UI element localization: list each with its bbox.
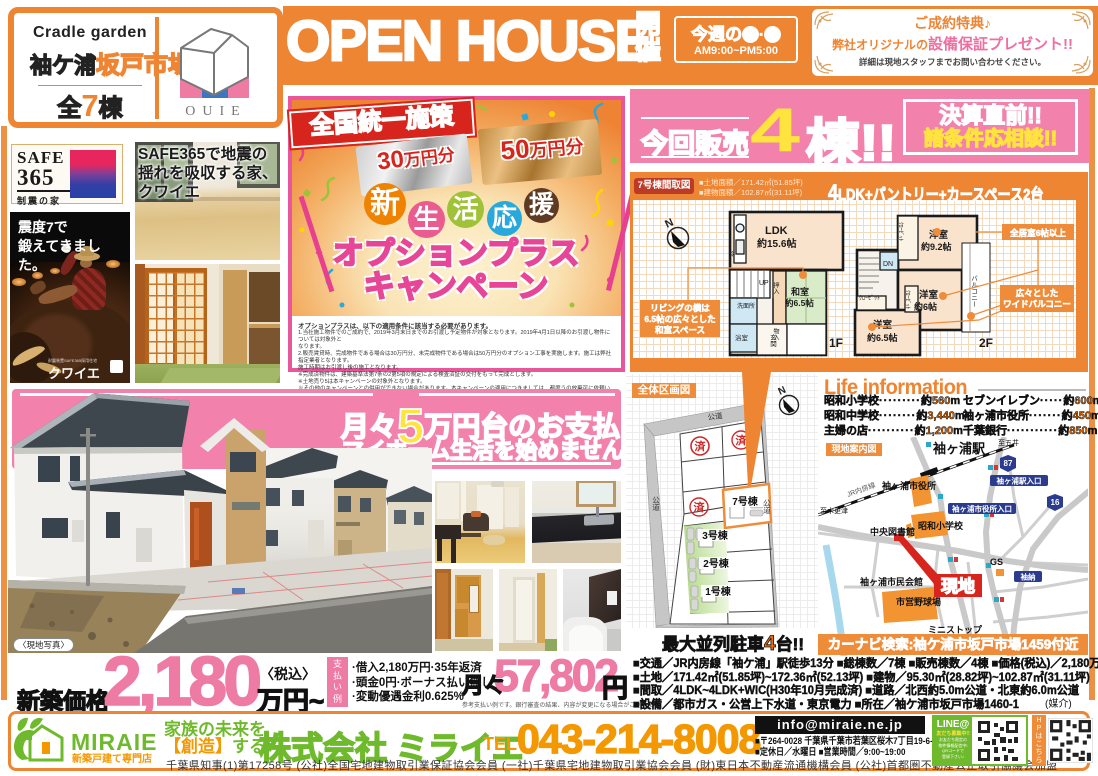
svg-text:和室: 和室 [790,286,809,297]
svg-text:済: 済 [694,500,705,514]
svg-text:ｸﾛｰｾﾞｯﾄ: ｸﾛｰｾﾞｯﾄ [904,290,911,310]
svg-text:冷: 冷 [729,250,735,258]
svg-text:袖ヶ浦駅: 袖ヶ浦駅 [933,441,986,456]
svg-text:現地: 現地 [941,576,975,596]
svg-text:ｸﾛｰｾﾞｯﾄ: ｸﾛｰｾﾞｯﾄ [859,295,880,302]
svg-text:済: 済 [695,439,706,453]
svg-text:2F: 2F [979,336,993,350]
svg-text:GS: GS [990,557,1003,567]
svg-text:7号棟: 7号棟 [732,495,759,508]
svg-text:全居室6帖以上: 全居室6帖以上 [1009,228,1066,238]
svg-text:約6帖: 約6帖 [914,301,937,312]
svg-text:至五井: 至五井 [998,438,1019,447]
svg-text:2号棟: 2号棟 [703,557,730,570]
svg-text:87: 87 [1004,459,1013,468]
svg-text:16: 16 [1051,498,1060,507]
svg-text:浴室: 浴室 [735,333,749,342]
svg-text:リビングの横は: リビングの横は [650,303,710,313]
svg-text:洋室: 洋室 [873,319,893,331]
svg-text:押入: 押入 [772,281,779,294]
svg-text:洗面所: 洗面所 [737,302,755,310]
svg-text:1F: 1F [829,336,843,350]
svg-text:袖ヶ浦市民会館: 袖ヶ浦市民会館 [859,576,923,587]
svg-text:和室スペース: 和室スペース [655,325,705,335]
svg-text:約6.5帖: 約6.5帖 [867,332,898,343]
svg-text:昭和小学校: 昭和小学校 [918,520,964,531]
svg-text:DN: DN [883,261,893,268]
svg-text:LDK: LDK [765,225,788,237]
svg-text:公道: 公道 [762,499,771,515]
svg-text:広々とした: 広々とした [1016,288,1059,298]
svg-text:袖ヶ浦駅入口: 袖ヶ浦駅入口 [996,476,1042,486]
svg-text:3号棟: 3号棟 [702,529,729,542]
svg-text:袖ヶ浦市役所入口: 袖ヶ浦市役所入口 [951,504,1012,514]
svg-text:至木更津: 至木更津 [820,506,848,515]
svg-text:市営野球場: 市営野球場 [896,596,941,607]
svg-text:1号棟: 1号棟 [705,585,732,598]
svg-text:約9.2帖: 約9.2帖 [921,241,952,252]
svg-text:袖ヶ浦市役所: 袖ヶ浦市役所 [881,480,936,491]
svg-text:公道: 公道 [651,496,660,512]
svg-text:洋室: 洋室 [919,289,939,301]
svg-text:ｸﾛｰｾﾞｯﾄ: ｸﾛｰｾﾞｯﾄ [897,222,904,242]
svg-text:中央図書館: 中央図書館 [870,526,915,537]
svg-text:ワイドバルコニー: ワイドバルコニー [1003,299,1071,309]
svg-text:UP: UP [759,280,769,287]
svg-text:6.5帖の広々とした: 6.5帖の広々とした [644,314,715,324]
svg-text:約6.5帖: 約6.5帖 [785,298,814,308]
svg-text:袖納: 袖納 [1020,572,1037,582]
svg-text:約15.6帖: 約15.6帖 [757,237,796,250]
